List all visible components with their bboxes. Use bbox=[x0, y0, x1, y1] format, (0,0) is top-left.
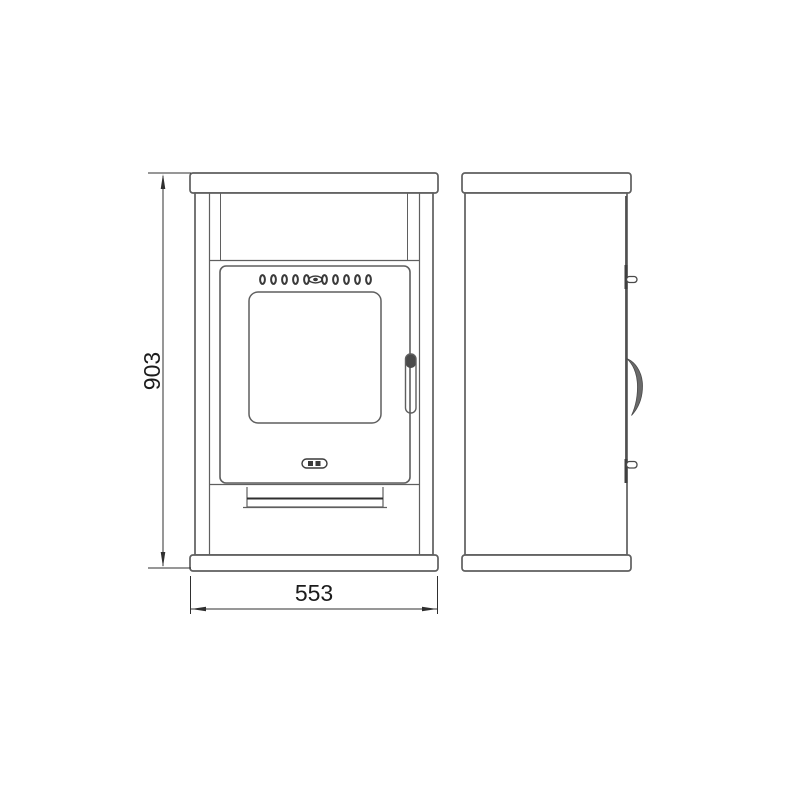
front-base-plate bbox=[190, 555, 438, 571]
vent-hole bbox=[293, 275, 298, 284]
upper-hinge-pin bbox=[627, 277, 638, 283]
air-control-latch bbox=[302, 459, 327, 468]
vent-hole bbox=[282, 275, 287, 284]
width-arrow-right bbox=[422, 607, 437, 612]
stove-technical-drawing: 903 553 bbox=[0, 0, 800, 800]
height-dimension: 903 bbox=[139, 173, 191, 568]
door-handle-side bbox=[627, 359, 643, 416]
height-arrow-down bbox=[161, 552, 166, 567]
width-dimension: 553 bbox=[191, 576, 438, 614]
height-arrow-up bbox=[161, 174, 166, 189]
vent-hole bbox=[304, 275, 309, 284]
latch-slider-right bbox=[316, 461, 321, 466]
front-top-plate bbox=[190, 173, 438, 193]
drawing-canvas: 903 553 bbox=[0, 0, 800, 800]
side-view bbox=[462, 173, 643, 571]
latch-slider-left bbox=[308, 461, 313, 466]
vent-center-dot bbox=[313, 278, 318, 281]
front-view bbox=[190, 173, 438, 571]
side-top-plate bbox=[462, 173, 631, 193]
vent-hole bbox=[333, 275, 338, 284]
vent-hole bbox=[322, 275, 327, 284]
vent-hole bbox=[260, 275, 265, 284]
vent-hole bbox=[344, 275, 349, 284]
vent-hole bbox=[271, 275, 276, 284]
side-base-plate bbox=[462, 555, 631, 571]
glass-window bbox=[249, 292, 381, 423]
vent-hole bbox=[366, 275, 371, 284]
vent-hole bbox=[355, 275, 360, 284]
lower-hinge-pin bbox=[627, 462, 638, 469]
side-body bbox=[465, 193, 627, 555]
latch-pill bbox=[302, 459, 327, 468]
height-dimension-label: 903 bbox=[139, 352, 165, 390]
width-dimension-label: 553 bbox=[295, 580, 333, 606]
width-arrow-left bbox=[191, 607, 206, 612]
